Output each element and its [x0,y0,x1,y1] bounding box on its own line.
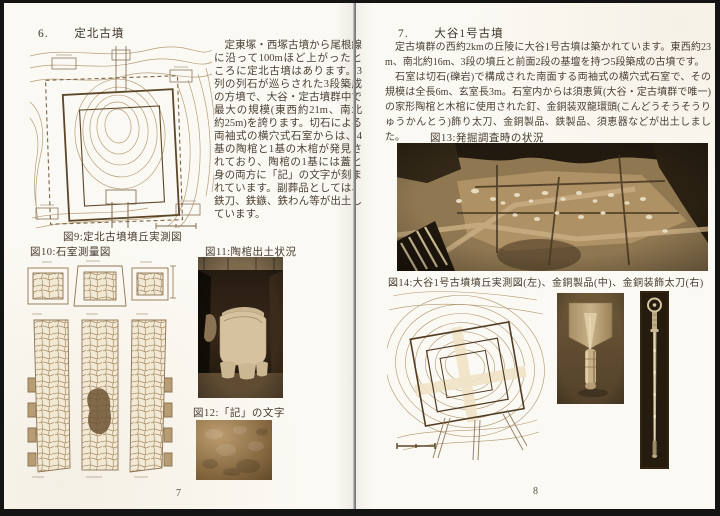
gutter-shadow-right [356,3,372,509]
fig13-excavation-photo [397,143,708,271]
fig11-pottery-coffin-photo [198,257,283,398]
fig9-caption: 図9:定北古墳墳丘実測図 [63,229,182,244]
right-section-title: 大谷1号古墳 [434,28,503,40]
fig10-caption: 図10:石室測量図 [30,244,111,259]
left-page-number: 7 [4,488,353,499]
right-section-number: 7. [398,28,409,40]
fig12-caption: 図12:「記」の文字 [193,405,285,420]
left-section-title: 定北古墳 [74,28,124,40]
fig14-caption: 図14:大谷1号古墳墳丘実測図(左)、金銅製品(中)、金銅装飾太刀(右) [388,274,704,289]
fig14-gilt-bronze-artifact-photo [557,293,624,404]
left-section-heading: 6. 定北古墳 [38,25,124,41]
fig14-ring-pommel-sword-photo [640,291,669,469]
fig9-mound-survey-contour-drawing [28,42,214,230]
right-section-heading: 7. 大谷1号古墳 [398,25,504,41]
page-gutter-divider [353,3,356,509]
right-page-number: 8 [356,486,715,497]
fig10-stone-chamber-survey-drawing [22,258,178,480]
fig14-mound-survey-drawing [387,288,549,460]
fig12-inscription-photo [196,420,272,480]
gutter-shadow-left [335,3,353,509]
scanned-booklet-spread: 6. 定北古墳 [0,0,720,516]
right-paragraph-1: 定古墳群の西約2kmの丘陵に大谷1号古墳は築かれています。東西約23m、南北約1… [385,40,711,70]
left-section-number: 6. [38,28,49,40]
